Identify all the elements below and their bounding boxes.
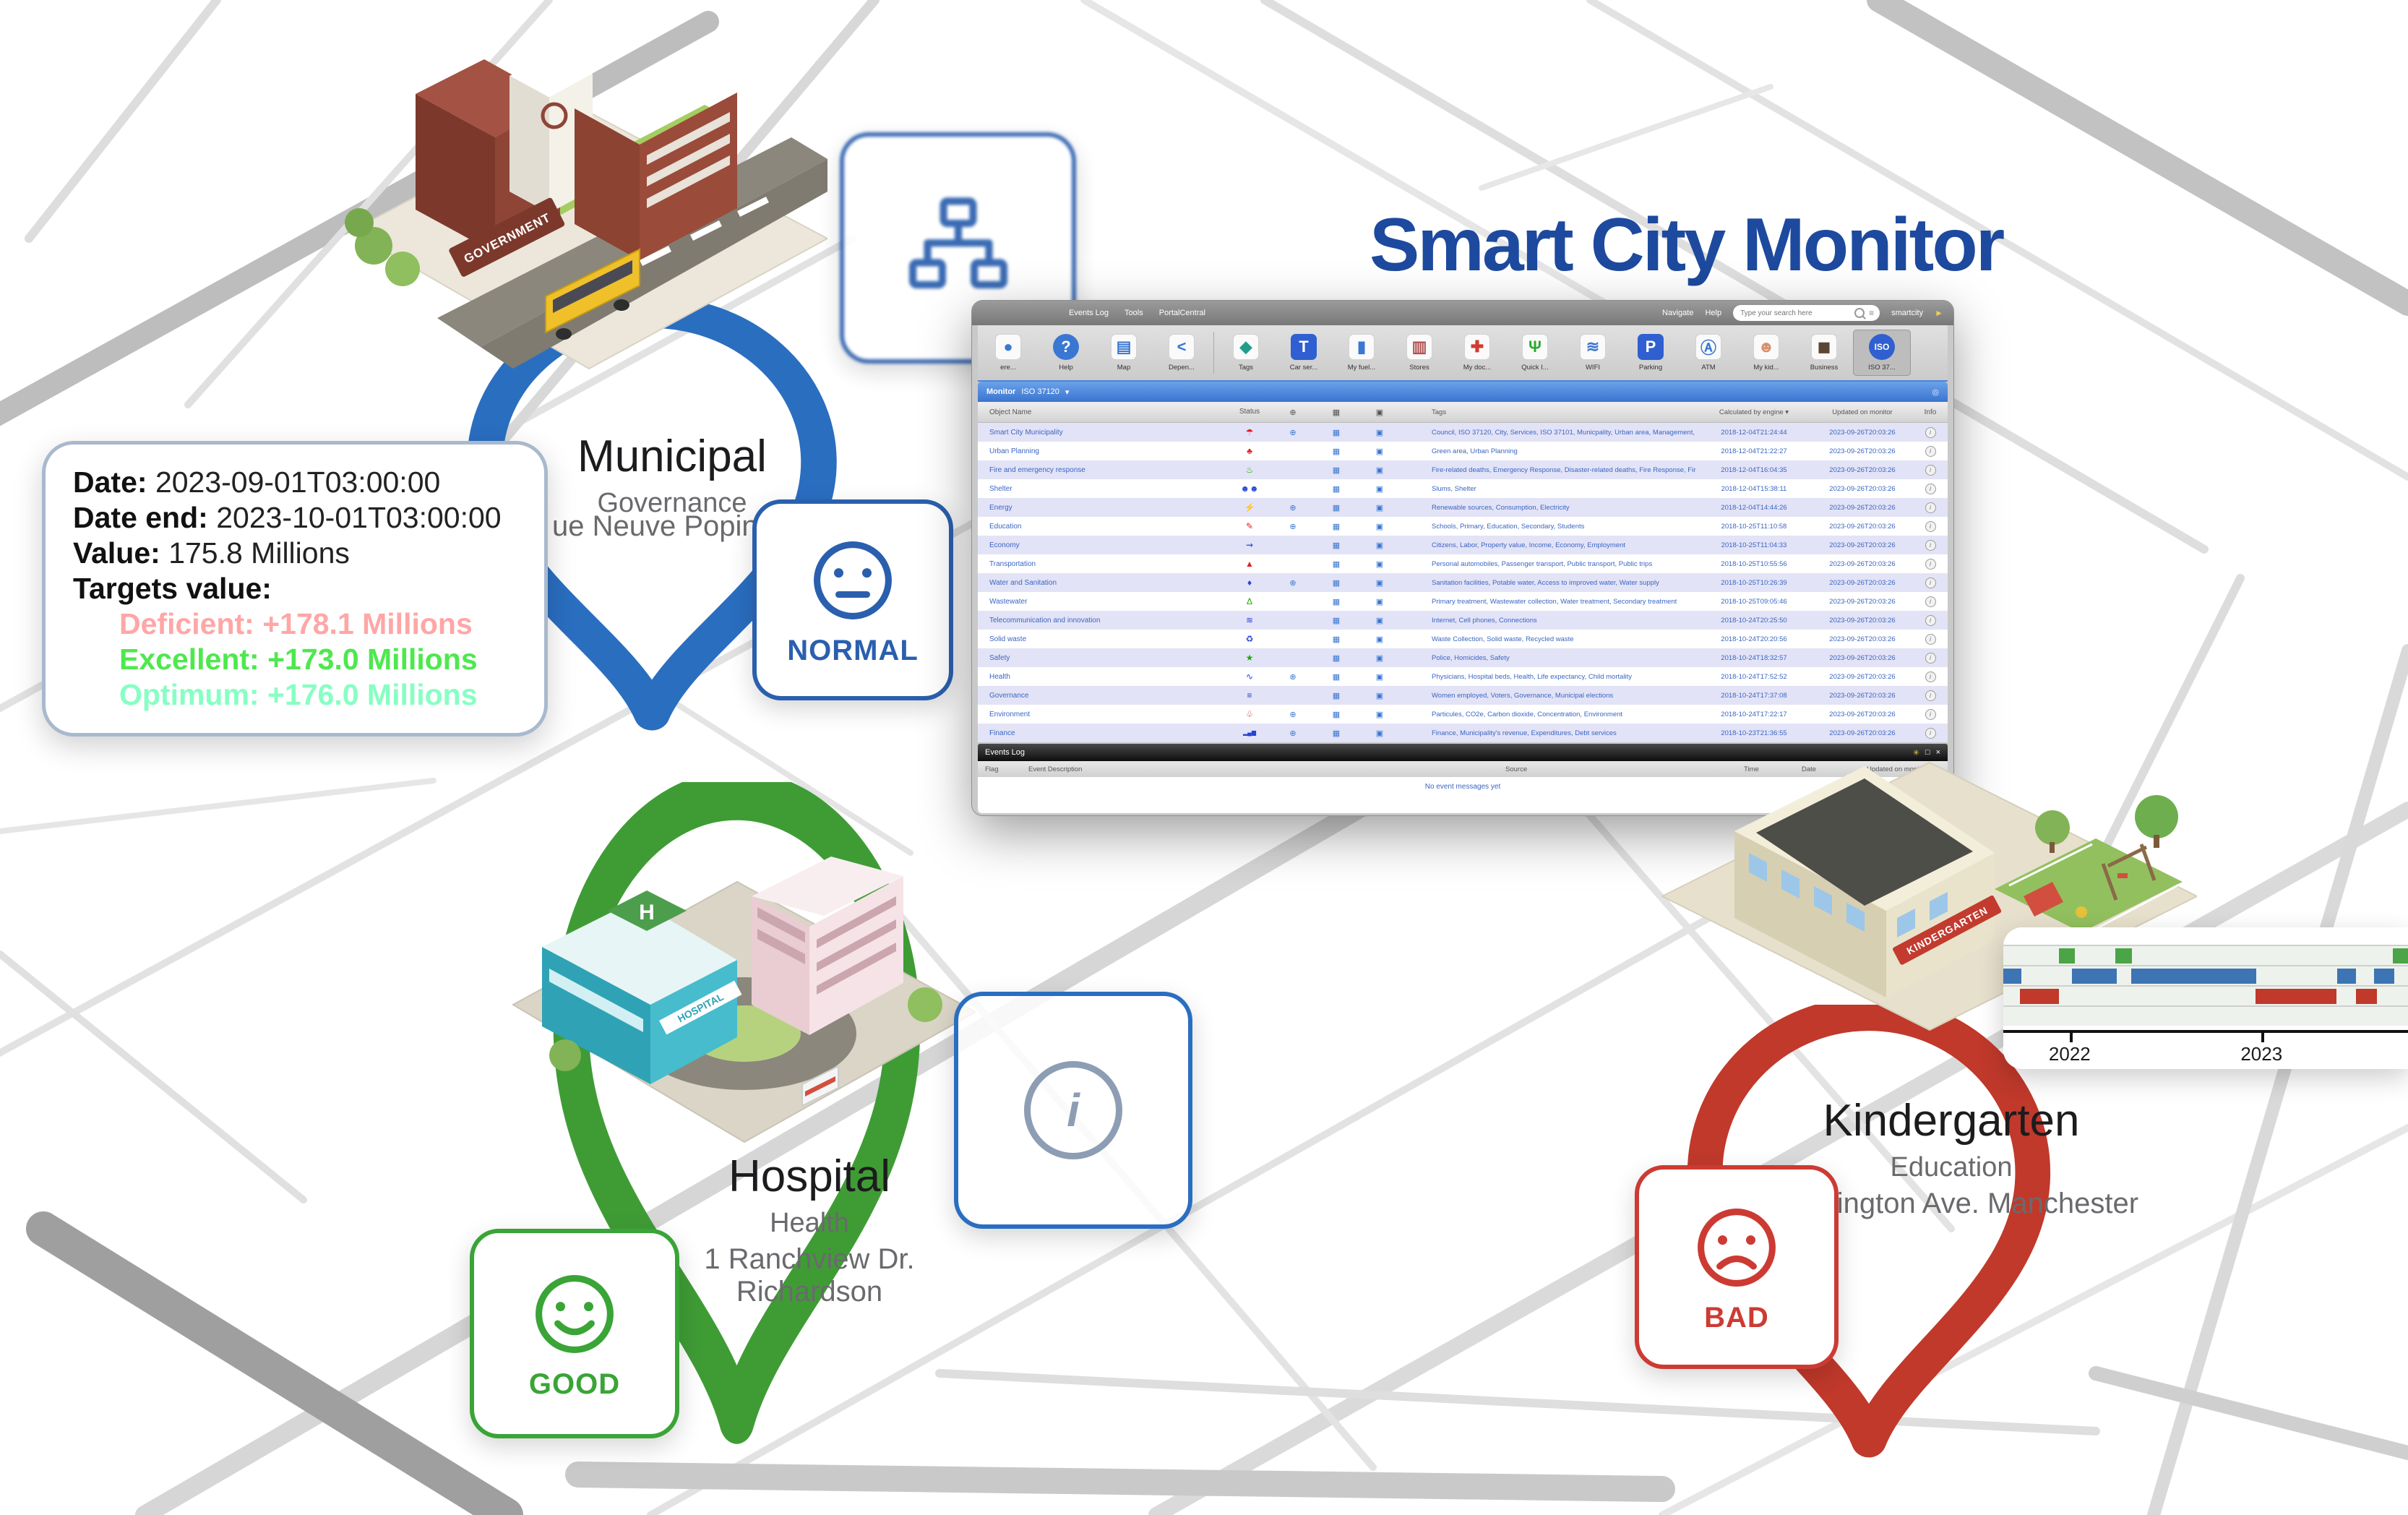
- image-icon: ▣: [1358, 672, 1401, 682]
- timeline-segment: [2020, 989, 2059, 1004]
- toolbar-button-my-doc[interactable]: ✚My doc...: [1448, 330, 1506, 376]
- menu-lines-icon: ≡: [1869, 308, 1874, 318]
- helipad-letter: H: [639, 901, 655, 924]
- toolbar-button-label: My doc...: [1463, 364, 1492, 372]
- globe-icon: ⊕: [1271, 503, 1315, 512]
- target-value: +173.0 Millions: [267, 643, 478, 676]
- info-icon[interactable]: i: [1925, 596, 1936, 607]
- row-tags: Sanitation facilities, Potable water, Ac…: [1401, 579, 1696, 587]
- tooltip-target-deficient: Deficient: +178.1 Millions: [73, 606, 517, 642]
- row-info-cell: i: [1913, 502, 1948, 513]
- film-icon: ▦: [1315, 428, 1358, 437]
- row-object-name: Education: [978, 523, 1228, 531]
- monitor-row[interactable]: Fire and emergency response♨▦▣Fire-relat…: [978, 460, 1948, 479]
- info-icon[interactable]: i: [1925, 502, 1936, 513]
- toolbar-button-label: Help: [1059, 364, 1073, 372]
- toolbar-button-label: ATM: [1701, 364, 1715, 372]
- monitor-panel-header: Monitor ISO 37120 ▾ ◎: [978, 382, 1948, 402]
- globe-icon: ⊕: [1271, 710, 1315, 719]
- row-info-cell: i: [1913, 596, 1948, 607]
- monitor-row[interactable]: Shelter☻☻▦▣Slums, Shelter2018-12-04T15:3…: [978, 479, 1948, 498]
- timeline-chart-card: 20222023: [2003, 927, 2408, 1069]
- toolbar-button-atm[interactable]: ⒶATM: [1680, 330, 1737, 376]
- wifi-icon: ≋: [1228, 616, 1271, 625]
- toolbar-button-quick-i[interactable]: ΨQuick I...: [1506, 330, 1564, 376]
- row-info-cell: i: [1913, 559, 1948, 570]
- row-object-name: Smart City Municipality: [978, 429, 1228, 437]
- tooltip-targets: Deficient: +178.1 MillionsExcellent: +17…: [73, 606, 517, 713]
- kid-icon: ☻: [1753, 334, 1779, 360]
- row-tags: Internet, Cell phones, Connections: [1401, 617, 1696, 625]
- menu-item-portalcentral[interactable]: PortalCentral: [1159, 309, 1205, 317]
- row-calculated: 2018-10-24T20:25:50: [1696, 617, 1812, 625]
- film-icon: ▦: [1315, 635, 1358, 644]
- info-icon[interactable]: i: [1925, 540, 1936, 551]
- row-updated: 2023-09-26T20:03:26: [1812, 654, 1913, 662]
- info-icon[interactable]: i: [1925, 634, 1936, 645]
- good-badge-label: GOOD: [529, 1368, 620, 1401]
- atm-icon: Ⓐ: [1695, 334, 1721, 360]
- timeline-segment: [2115, 948, 2132, 963]
- monitor-row[interactable]: Water and Sanitation♦⊕▦▣Sanitation facil…: [978, 573, 1948, 592]
- search-box[interactable]: ≡: [1733, 305, 1880, 321]
- film-icon: ▦: [1315, 597, 1358, 606]
- row-calculated: 2018-10-24T20:20:56: [1696, 635, 1812, 643]
- info-icon[interactable]: i: [1925, 521, 1936, 532]
- row-object-name: Water and Sanitation: [978, 579, 1228, 587]
- row-calculated: 2018-10-25T11:10:58: [1696, 523, 1812, 531]
- timeline-lane-2: [2003, 965, 2408, 985]
- toolbar-separator: [1213, 332, 1214, 374]
- row-info-cell: i: [1913, 540, 1948, 551]
- target-label: Deficient:: [119, 607, 262, 640]
- row-updated: 2023-09-26T20:03:26: [1812, 635, 1913, 643]
- globe-icon: ⊕: [1271, 522, 1315, 531]
- hospital-label-block: Hospital Health 1 Ranchview Dr. Richards…: [636, 1151, 983, 1308]
- row-object-name: Telecommunication and innovation: [978, 617, 1228, 625]
- timeline-tick: [2070, 1033, 2073, 1042]
- info-icon[interactable]: i: [1925, 653, 1936, 664]
- image-icon: ▣: [1358, 616, 1401, 625]
- info-icon[interactable]: i: [1925, 578, 1936, 588]
- row-tags: Personal automobiles, Passenger transpor…: [1401, 560, 1696, 568]
- row-object-name: Solid waste: [978, 635, 1228, 643]
- flask-icon: Δ: [1228, 597, 1271, 606]
- timeline-lane-3: [2003, 985, 2408, 1005]
- umbrella-icon: ☂: [1228, 428, 1271, 437]
- row-tags: Police, Homicides, Safety: [1401, 654, 1696, 662]
- row-object-name: Wastewater: [978, 598, 1228, 606]
- lock-icon: ★: [1228, 653, 1271, 662]
- droplet-icon: ♦: [1228, 578, 1271, 587]
- toolbar-button-label: Depen...: [1169, 364, 1195, 372]
- toolbar-button-help[interactable]: ?Help: [1037, 330, 1095, 376]
- row-info-cell: i: [1913, 484, 1948, 494]
- tooltip-target-excellent: Excellent: +173.0 Millions: [73, 642, 517, 677]
- image-icon: ▣: [1358, 729, 1401, 738]
- search-input[interactable]: [1739, 309, 1850, 318]
- film-icon: ▦: [1315, 541, 1358, 550]
- row-tags: Fire-related deaths, Emergency Response,…: [1401, 466, 1696, 474]
- row-calculated: 2018-10-25T10:55:56: [1696, 560, 1812, 568]
- toolbar-button-map[interactable]: ▤Map: [1095, 330, 1153, 376]
- row-info-cell: i: [1913, 446, 1948, 457]
- bad-badge-label: BAD: [1704, 1302, 1769, 1334]
- info-icon: i: [1024, 1061, 1122, 1159]
- row-object-name: Economy: [978, 541, 1228, 549]
- share-icon: <: [1169, 334, 1195, 360]
- row-info-cell: i: [1913, 634, 1948, 645]
- toolbar-button-my-fuel[interactable]: ▮My fuel...: [1333, 330, 1390, 376]
- menu-item-tools[interactable]: Tools: [1125, 309, 1143, 317]
- hierarchy-icon: [897, 186, 1020, 309]
- column-status[interactable]: Status: [1228, 408, 1271, 416]
- iso-icon: ISO: [1869, 334, 1895, 360]
- page-title: Smart City Monitor: [1369, 202, 2179, 288]
- image-icon: ▣: [1358, 522, 1401, 531]
- image-icon: ▣: [1358, 653, 1401, 663]
- monitor-column-header: Object Name Status ⊕ ▦ ▣ Tags Calculated…: [978, 402, 1948, 423]
- row-tags: Slums, Shelter: [1401, 485, 1696, 493]
- monitor-row[interactable]: Economy⇝▦▣Citizens, Labor, Property valu…: [978, 536, 1948, 554]
- traffic-cone-icon: ▲: [1228, 559, 1271, 568]
- info-icon[interactable]: i: [1925, 446, 1936, 457]
- film-icon: ▦: [1315, 729, 1358, 738]
- column-updated[interactable]: Updated on monitor: [1812, 408, 1913, 416]
- globe-column-icon[interactable]: ⊕: [1271, 408, 1315, 417]
- window-toolbar: ●ere...?Help▤Map<Depen...◆TagsTCar ser..…: [978, 325, 1948, 382]
- info-icon[interactable]: i: [1925, 484, 1936, 494]
- timeline-segment: [2131, 969, 2256, 984]
- toolbar-button-my-kid[interactable]: ☻My kid...: [1737, 330, 1795, 376]
- toolbar-button-label: Parking: [1639, 364, 1662, 372]
- info-icon[interactable]: i: [1925, 427, 1936, 438]
- timeline-tick: [2261, 1033, 2264, 1042]
- row-tags: Primary treatment, Wastewater collection…: [1401, 598, 1696, 606]
- dropdown-caret-icon[interactable]: ▾: [1065, 387, 1070, 397]
- sad-face-icon: [1690, 1201, 1784, 1295]
- column-info[interactable]: Info: [1913, 408, 1948, 416]
- toolbar-button-label: WIFI: [1586, 364, 1600, 372]
- hospital-address: 1 Ranchview Dr. Richardson: [636, 1243, 983, 1308]
- info-icon[interactable]: i: [1925, 559, 1936, 570]
- row-tags: Council, ISO 37120, City, Services, ISO …: [1401, 429, 1696, 437]
- column-calculated[interactable]: Calculated by engine ▾: [1696, 408, 1812, 416]
- row-object-name: Transportation: [978, 560, 1228, 568]
- row-calculated: 2018-10-25T10:26:39: [1696, 579, 1812, 587]
- wifi-icon: ≋: [1580, 334, 1606, 360]
- events-column-flag[interactable]: Flag: [978, 765, 1021, 773]
- timeline-segment: [2393, 948, 2408, 963]
- row-updated: 2023-09-26T20:03:26: [1812, 541, 1913, 549]
- image-icon: ▣: [1358, 559, 1401, 569]
- film-icon: ▦: [1315, 710, 1358, 719]
- timeline-tick-label: 2023: [2240, 1043, 2282, 1065]
- row-info-cell: i: [1913, 521, 1948, 532]
- trash-icon: ♻: [1228, 635, 1271, 643]
- film-icon: ▦: [1315, 616, 1358, 625]
- globe-icon: ⊕: [1271, 578, 1315, 588]
- row-object-name: Safety: [978, 654, 1228, 662]
- timeline-lane-4: [2003, 1005, 2408, 1026]
- film-icon: ▦: [1315, 691, 1358, 700]
- bar-chart-icon: ▂▄▆: [1228, 730, 1271, 736]
- toolbar-button-label: Quick I...: [1521, 364, 1548, 372]
- smart-city-illustration: Smart City Monitor GOVERNMENT: [0, 0, 2408, 1515]
- panel-title: Monitor: [986, 387, 1015, 396]
- toolbar-button-stores[interactable]: ▥Stores: [1390, 330, 1448, 376]
- menu-item-help[interactable]: Help: [1705, 309, 1721, 317]
- circle-icon: ●: [995, 334, 1021, 360]
- plug-icon: ⚡: [1228, 503, 1271, 512]
- bad-status-badge: BAD: [1635, 1165, 1839, 1369]
- row-updated: 2023-09-26T20:03:26: [1812, 447, 1913, 455]
- menu-item-events-log[interactable]: Events Log: [1069, 309, 1109, 317]
- image-icon: ▣: [1358, 710, 1401, 719]
- neutral-face-icon: [806, 533, 900, 627]
- row-info-cell: i: [1913, 615, 1948, 626]
- car-service-icon: T: [1291, 334, 1317, 360]
- row-calculated: 2018-12-04T14:44:26: [1696, 504, 1812, 512]
- events-column-event-description[interactable]: Event Description: [1021, 765, 1498, 773]
- hospital-building-illustration: HOSPITAL H: [499, 766, 976, 1185]
- film-icon: ▦: [1315, 578, 1358, 588]
- toolbar-button-business[interactable]: ◼Business: [1795, 330, 1853, 376]
- target-label: Excellent:: [119, 643, 267, 676]
- hospital-category: Health: [636, 1208, 983, 1239]
- medical-cross-icon: ✚: [1464, 334, 1490, 360]
- row-updated: 2023-09-26T20:03:26: [1812, 560, 1913, 568]
- row-object-name: Finance: [978, 729, 1228, 737]
- row-info-cell: i: [1913, 427, 1948, 438]
- normal-badge-label: NORMAL: [787, 635, 919, 667]
- events-log-title: Events Log: [985, 748, 1025, 757]
- film-icon: ▦: [1315, 503, 1358, 512]
- row-calculated: 2018-12-04T21:22:27: [1696, 447, 1812, 455]
- toolbar-button-tags[interactable]: ◆Tags: [1217, 330, 1275, 376]
- image-icon: ▣: [1358, 447, 1401, 456]
- tooltip-target-optimum: Optimum: +176.0 Millions: [73, 677, 517, 713]
- timeline-segment: [2356, 989, 2377, 1004]
- row-updated: 2023-09-26T20:03:26: [1812, 579, 1913, 587]
- film-icon: ▦: [1315, 672, 1358, 682]
- row-updated: 2023-09-26T20:03:26: [1812, 523, 1913, 531]
- row-tags: Waste Collection, Solid waste, Recycled …: [1401, 635, 1696, 643]
- film-icon: ▦: [1315, 447, 1358, 456]
- globe-icon: ⊕: [1271, 672, 1315, 682]
- briefcase-icon: ◼: [1811, 334, 1837, 360]
- row-calculated: 2018-10-25T09:05:46: [1696, 598, 1812, 606]
- row-updated: 2023-09-26T20:03:26: [1812, 466, 1913, 474]
- toolbar-button-wifi[interactable]: ≋WIFI: [1564, 330, 1622, 376]
- monitor-row[interactable]: WastewaterΔ▦▣Primary treatment, Wastewat…: [978, 592, 1948, 611]
- tooltip-date-end-line: Date end: 2023-10-01T03:00:00: [73, 500, 517, 536]
- monitor-row[interactable]: Urban Planning♣▦▣Green area, Urban Plann…: [978, 442, 1948, 460]
- column-tags[interactable]: Tags: [1401, 408, 1696, 416]
- image-icon: ▣: [1358, 465, 1401, 475]
- target-value: +178.1 Millions: [262, 607, 473, 640]
- info-icon[interactable]: i: [1925, 465, 1936, 476]
- map-icon: ▤: [1111, 334, 1137, 360]
- toolbar-button-iso-37[interactable]: ISOISO 37...: [1853, 330, 1911, 376]
- parking-icon: P: [1638, 334, 1664, 360]
- row-object-name: Urban Planning: [978, 447, 1228, 455]
- good-status-badge: GOOD: [470, 1229, 679, 1438]
- row-calculated: 2018-12-04T21:24:44: [1696, 429, 1812, 437]
- image-icon: ▣: [1358, 503, 1401, 512]
- row-updated: 2023-09-26T20:03:26: [1812, 598, 1913, 606]
- menu-left: Events LogToolsPortalCentral: [1069, 309, 1205, 317]
- window-menu-bar: Events LogToolsPortalCentral NavigateHel…: [972, 301, 1953, 325]
- timeline-segment: [2337, 969, 2356, 984]
- timeline-segment: [2059, 948, 2075, 963]
- tooltip-targets-label: Targets value:: [73, 571, 517, 606]
- waves-arrow-icon: ⇝: [1228, 541, 1271, 549]
- timeline-segment: [2003, 969, 2021, 984]
- tooltip-value-line: Value: 175.8 Millions: [73, 536, 517, 571]
- search-icon: [1854, 308, 1865, 318]
- target-label: Optimum:: [119, 678, 267, 711]
- toolbar-button-ere[interactable]: ●ere...: [979, 330, 1037, 376]
- row-tags: Green area, Urban Planning: [1401, 447, 1696, 455]
- image-icon: ▣: [1358, 635, 1401, 644]
- row-info-cell: i: [1913, 653, 1948, 664]
- monitor-row[interactable]: Solid waste♻▦▣Waste Collection, Solid wa…: [978, 630, 1948, 648]
- globe-icon: ⊕: [1271, 428, 1315, 437]
- toolbar-button-label: My kid...: [1753, 364, 1779, 372]
- monitor-row[interactable]: Telecommunication and innovation≋▦▣Inter…: [978, 611, 1948, 630]
- panel-filter[interactable]: ISO 37120: [1021, 387, 1059, 396]
- row-updated: 2023-09-26T20:03:26: [1812, 617, 1913, 625]
- monitor-row[interactable]: Safety★▦▣Police, Homicides, Safety2018-1…: [978, 648, 1948, 667]
- toolbar-button-label: Car ser...: [1290, 364, 1318, 372]
- film-icon: ▦: [1315, 559, 1358, 569]
- row-object-name: Governance: [978, 692, 1228, 700]
- username-label[interactable]: smartcity: [1891, 309, 1923, 317]
- tag-icon: ◆: [1233, 334, 1259, 360]
- film-icon: ▦: [1315, 465, 1358, 475]
- kindergarten-name: Kindergarten: [1763, 1095, 2139, 1146]
- toolbar-button-label: Tags: [1239, 364, 1253, 372]
- row-tags: Citizens, Labor, Property value, Income,…: [1401, 541, 1696, 549]
- eye-icon[interactable]: ◎: [1932, 387, 1939, 397]
- row-calculated: 2018-12-04T16:04:35: [1696, 466, 1812, 474]
- people-icon: ☻☻: [1228, 484, 1271, 493]
- flame-icon: ♨: [1228, 465, 1271, 474]
- timeline-lane-1: [2003, 945, 2408, 965]
- film-icon: ▦: [1315, 522, 1358, 531]
- globe-icon: ⊕: [1271, 729, 1315, 738]
- toolbar-button-label: Map: [1117, 364, 1130, 372]
- smile-face-icon: [528, 1267, 622, 1361]
- film-column-icon[interactable]: ▦: [1315, 408, 1358, 417]
- events-empty-message: No event messages yet: [1425, 783, 1501, 791]
- leaf-icon: ♧: [1228, 710, 1271, 718]
- film-icon: ▦: [1315, 653, 1358, 663]
- monitor-row[interactable]: Smart City Municipality☂⊕▦▣Council, ISO …: [978, 423, 1948, 442]
- menu-right: NavigateHelp ≡ smartcity ►: [1662, 305, 1943, 321]
- monitor-row[interactable]: Transportation▲▦▣Personal automobiles, P…: [978, 554, 1948, 573]
- info-badge: i: [954, 992, 1192, 1229]
- row-object-name: Fire and emergency response: [978, 466, 1228, 474]
- food-icon: Ψ: [1522, 334, 1548, 360]
- toolbar-button-label: Business: [1810, 364, 1839, 372]
- timeline-segment: [2256, 989, 2336, 1004]
- row-tags: Schools, Primary, Education, Secondary, …: [1401, 523, 1696, 531]
- cursor-icon: ►: [1935, 308, 1943, 318]
- image-icon: ▣: [1358, 691, 1401, 700]
- municipal-building-illustration: GOVERNMENT: [329, 7, 827, 412]
- hospital-name: Hospital: [636, 1151, 983, 1202]
- image-icon: ▣: [1358, 597, 1401, 606]
- graduation-cap-icon: ✎: [1228, 522, 1271, 531]
- stores-icon: ▥: [1406, 334, 1432, 360]
- toolbar-button-label: ISO 37...: [1868, 364, 1896, 372]
- row-info-cell: i: [1913, 465, 1948, 476]
- film-icon: ▦: [1315, 484, 1358, 494]
- monitor-row[interactable]: Education✎⊕▦▣Schools, Primary, Education…: [978, 517, 1948, 536]
- municipal-name: Municipal: [506, 431, 838, 482]
- normal-status-badge: NORMAL: [752, 499, 953, 700]
- row-calculated: 2018-10-25T11:04:33: [1696, 541, 1812, 549]
- image-icon: ▣: [1358, 484, 1401, 494]
- value-tooltip: Date: 2023-09-01T03:00:00 Date end: 2023…: [42, 441, 548, 737]
- timeline-lanes: [2003, 945, 2408, 1026]
- layers-icon: ≡: [1228, 691, 1271, 700]
- toolbar-button-parking[interactable]: PParking: [1622, 330, 1680, 376]
- pulse-icon: ∿: [1228, 672, 1271, 681]
- image-icon: ▣: [1358, 578, 1401, 588]
- row-updated: 2023-09-26T20:03:26: [1812, 485, 1913, 493]
- toolbar-button-label: Stores: [1409, 364, 1429, 372]
- timeline-tick-label: 2022: [2049, 1043, 2091, 1065]
- row-object-name: Shelter: [978, 485, 1228, 493]
- image-icon: ▣: [1358, 541, 1401, 550]
- image-column-icon[interactable]: ▣: [1358, 408, 1401, 417]
- row-tags: Renewable sources, Consumption, Electric…: [1401, 504, 1696, 512]
- toolbar-button-car-ser[interactable]: TCar ser...: [1275, 330, 1333, 376]
- image-icon: ▣: [1358, 428, 1401, 437]
- column-object-name[interactable]: Object Name: [978, 408, 1228, 416]
- toolbar-button-depen[interactable]: <Depen...: [1153, 330, 1211, 376]
- info-icon[interactable]: i: [1925, 615, 1936, 626]
- toolbar-button-label: ere...: [1000, 364, 1016, 372]
- row-updated: 2023-09-26T20:03:26: [1812, 504, 1913, 512]
- help-icon: ?: [1053, 334, 1079, 360]
- row-calculated: 2018-12-04T15:38:11: [1696, 485, 1812, 493]
- tooltip-date-line: Date: 2023-09-01T03:00:00: [73, 465, 517, 500]
- row-calculated: 2018-10-24T18:32:57: [1696, 654, 1812, 662]
- timeline-segment: [2374, 969, 2394, 984]
- toolbar-button-label: My fuel...: [1348, 364, 1376, 372]
- row-info-cell: i: [1913, 578, 1948, 588]
- fuel-icon: ▮: [1349, 334, 1375, 360]
- menu-item-navigate[interactable]: Navigate: [1662, 309, 1693, 317]
- target-value: +176.0 Millions: [267, 678, 478, 711]
- timeline-segment: [2072, 969, 2117, 984]
- row-object-name: Health: [978, 673, 1228, 681]
- row-object-name: Energy: [978, 504, 1228, 512]
- row-updated: 2023-09-26T20:03:26: [1812, 429, 1913, 437]
- monitor-row[interactable]: Energy⚡⊕▦▣Renewable sources, Consumption…: [978, 498, 1948, 517]
- row-object-name: Environment: [978, 711, 1228, 718]
- tree-icon: ♣: [1228, 447, 1271, 455]
- timeline-axis: [2003, 1030, 2408, 1033]
